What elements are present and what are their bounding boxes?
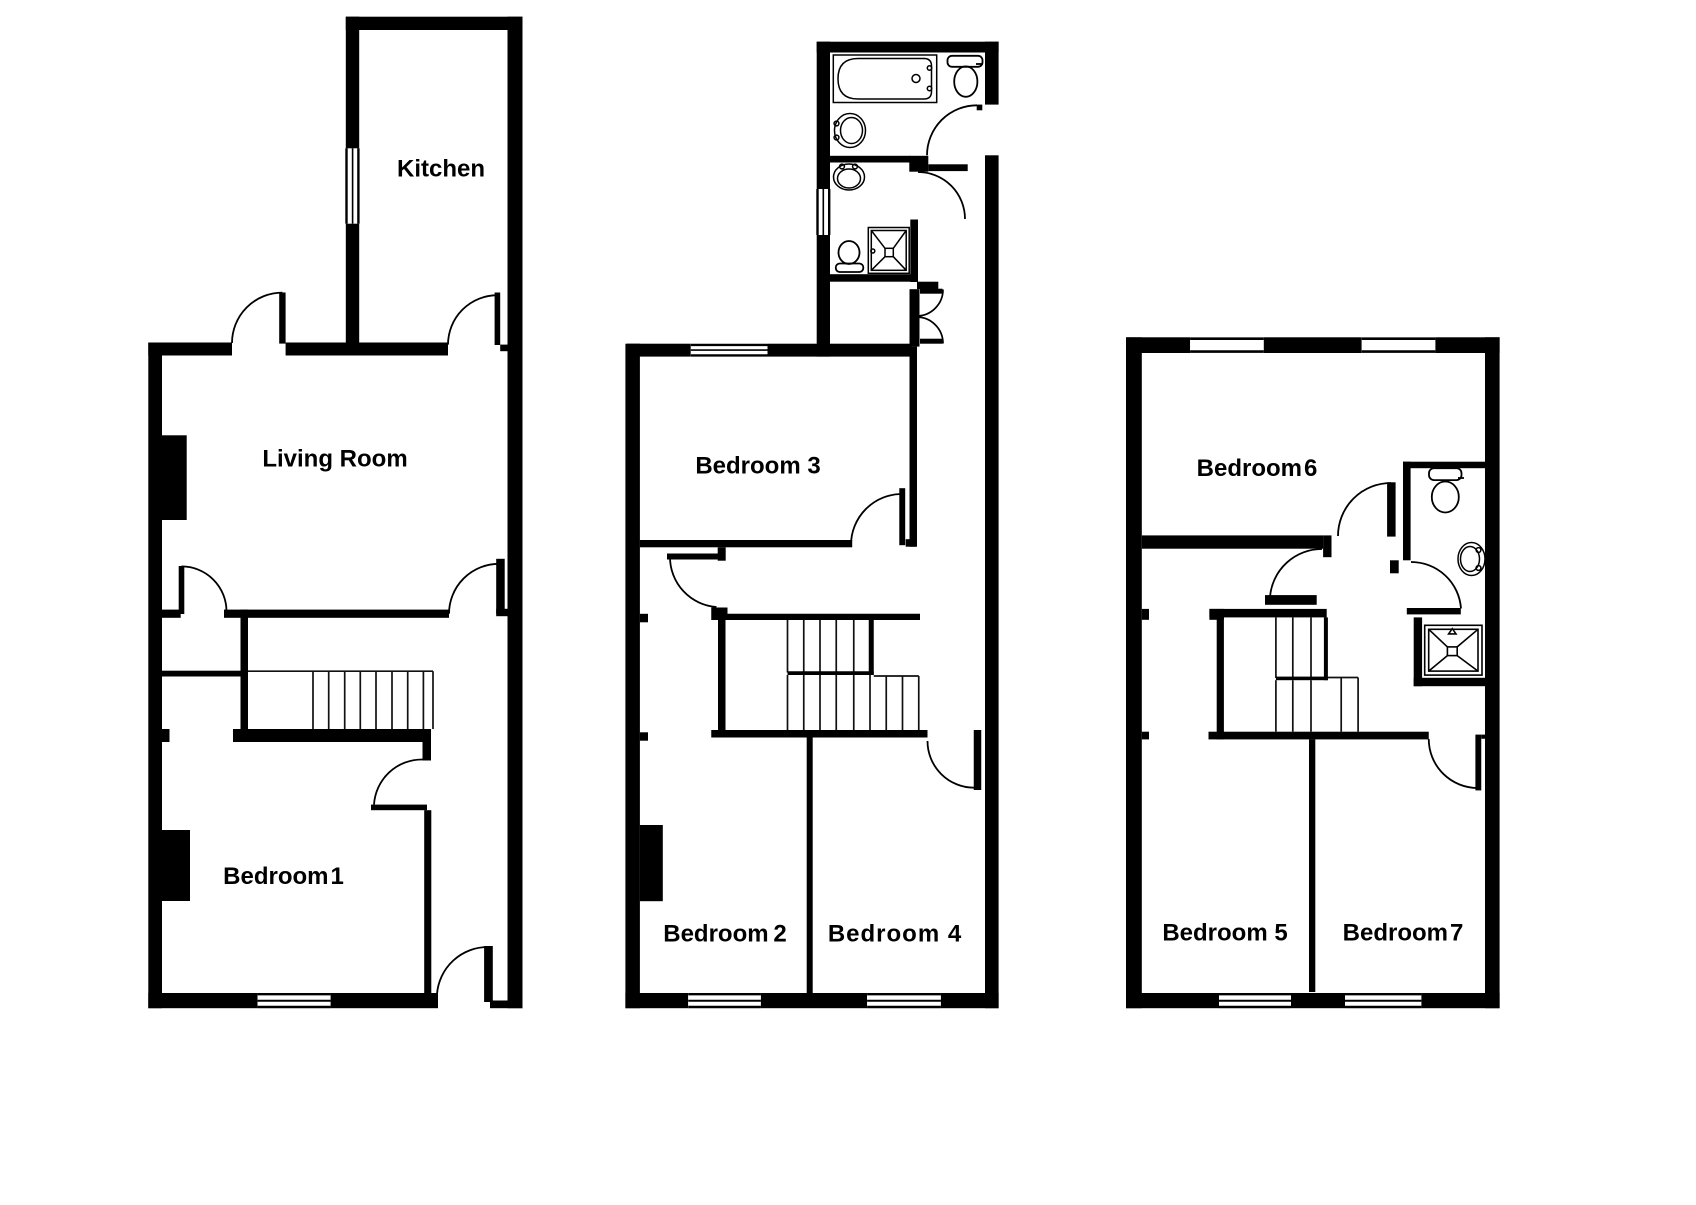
svg-text:Living Room: Living Room — [262, 446, 407, 473]
svg-text:Kitchen: Kitchen — [397, 156, 485, 183]
svg-text:Bedroom 4: Bedroom 4 — [828, 921, 962, 948]
svg-text:Bedroom 1: Bedroom 1 — [223, 863, 344, 890]
svg-text:Bedroom 2: Bedroom 2 — [663, 921, 787, 948]
svg-text:Bedroom 7: Bedroom 7 — [1343, 920, 1464, 947]
svg-text:Bedroom 3: Bedroom 3 — [695, 453, 820, 480]
svg-text:Bedroom 6: Bedroom 6 — [1197, 455, 1318, 482]
svg-text:Bedroom 5: Bedroom 5 — [1162, 920, 1287, 947]
